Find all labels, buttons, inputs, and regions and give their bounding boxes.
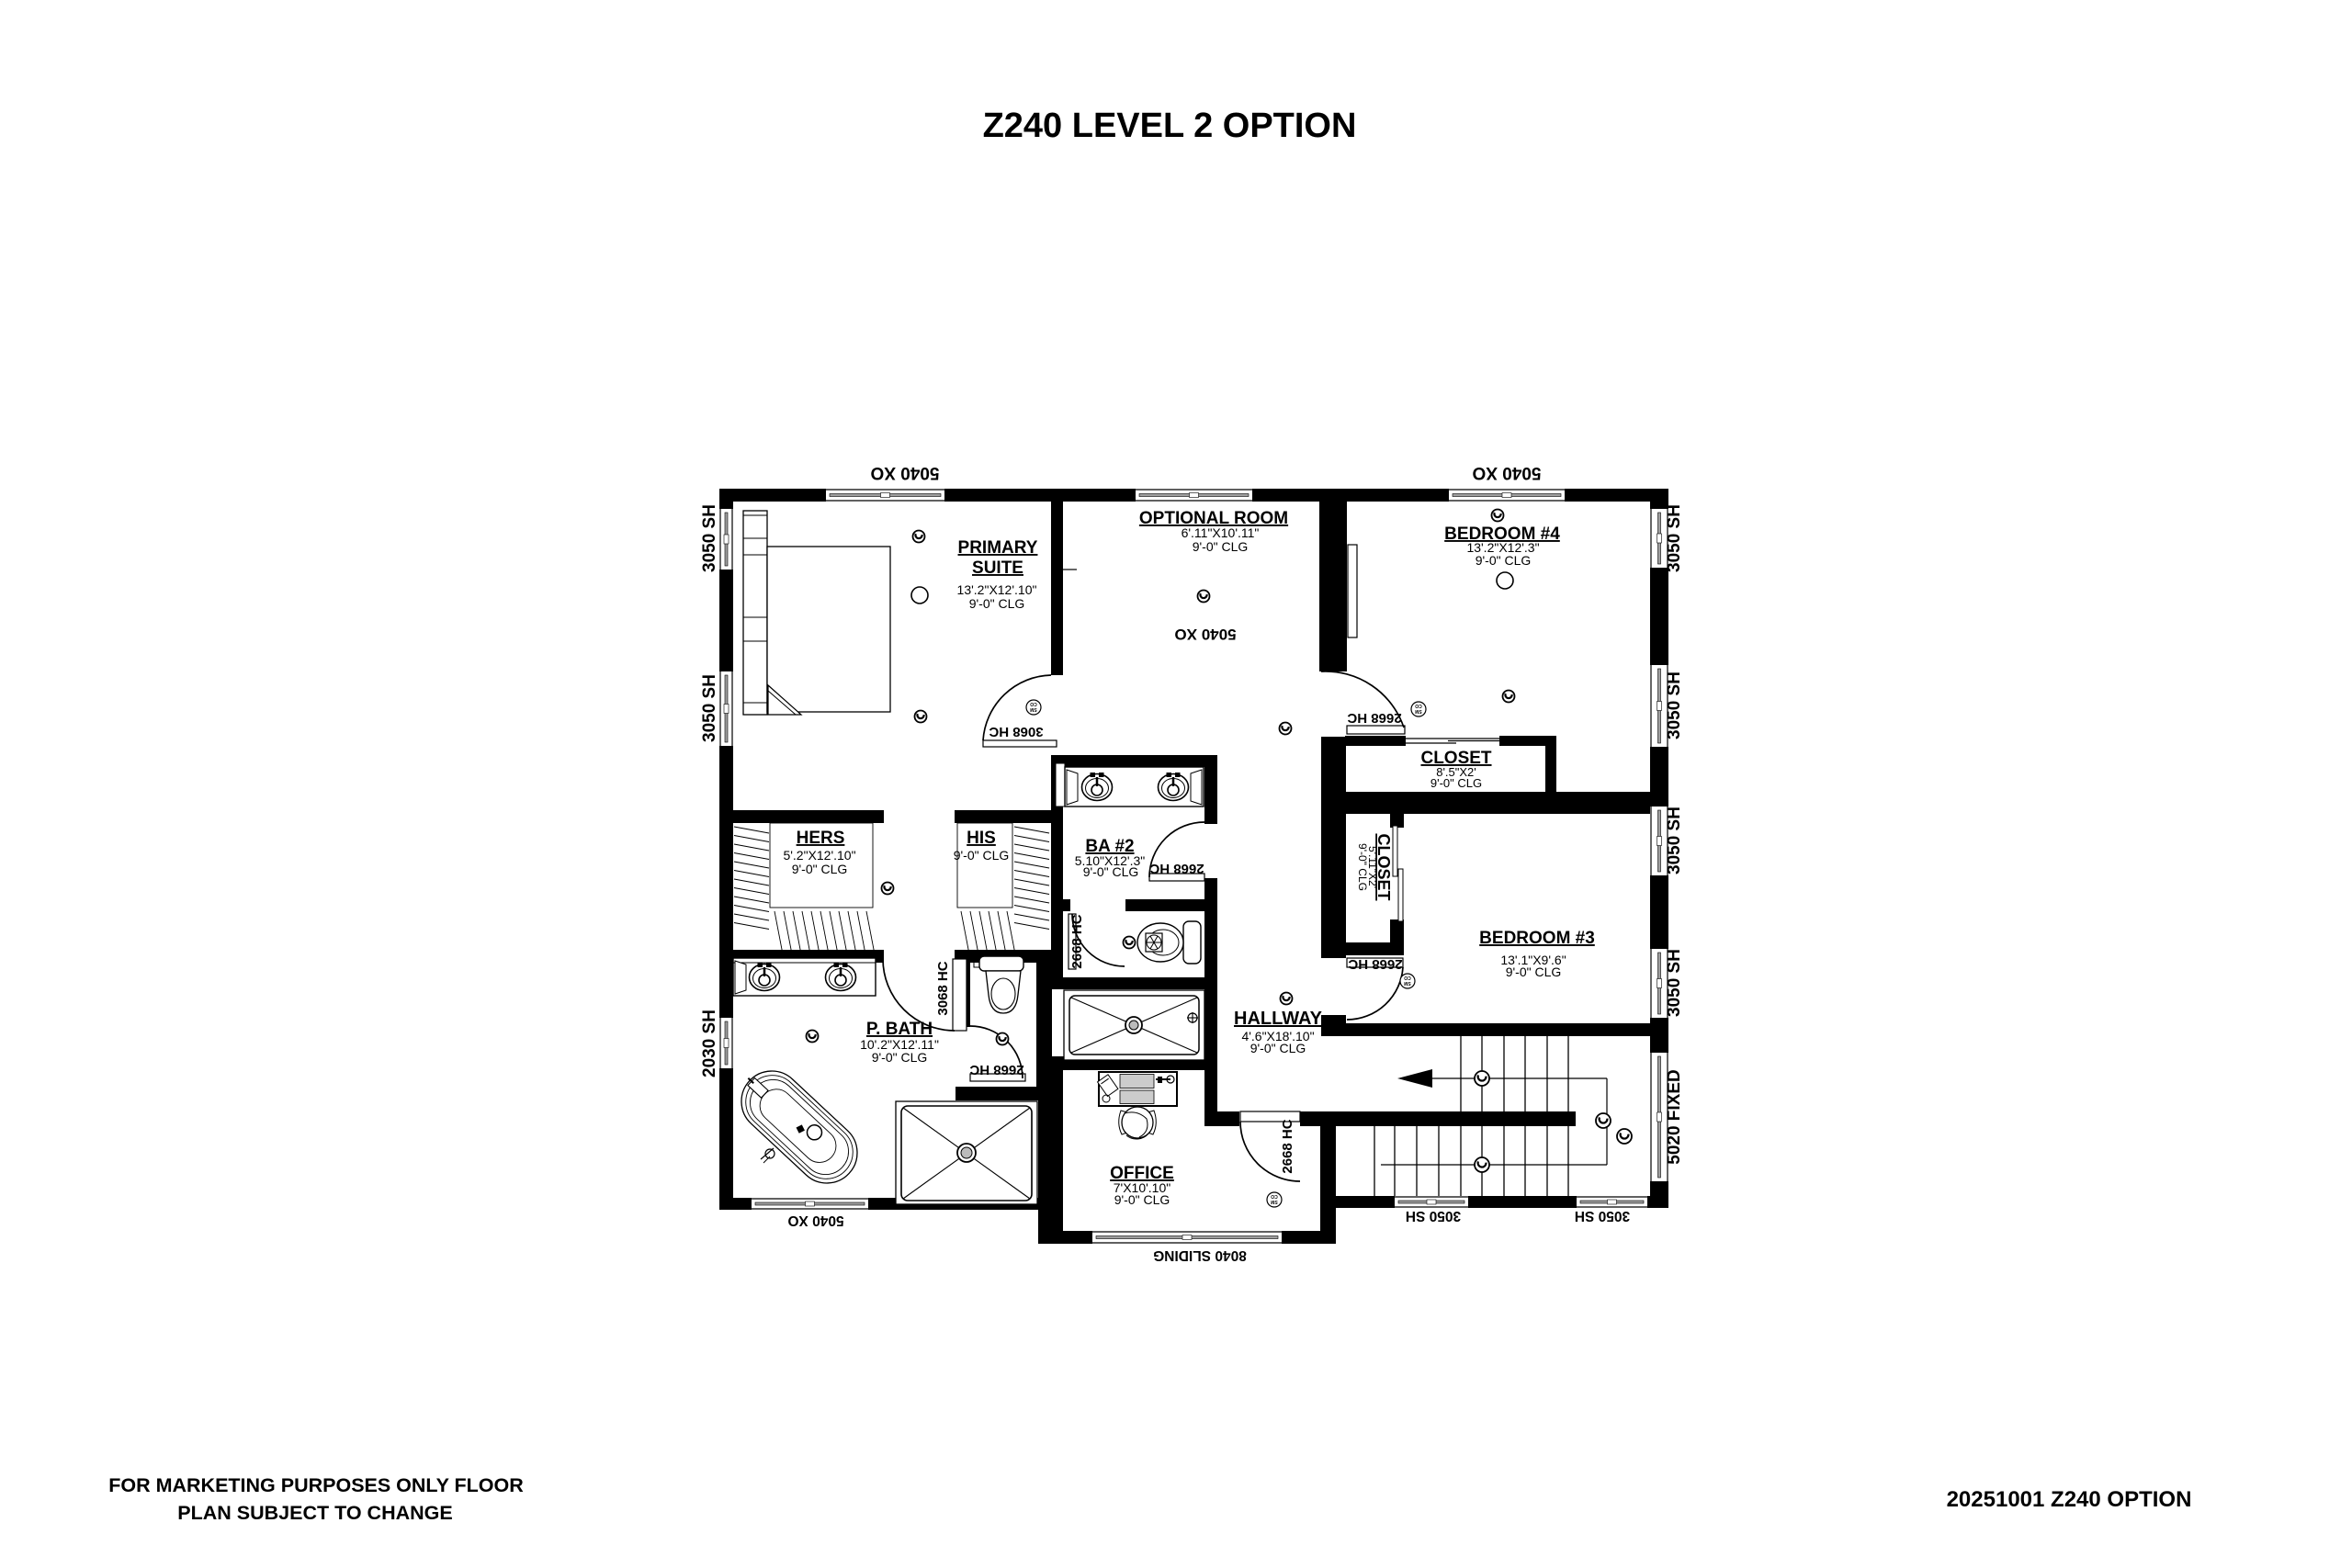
svg-text:5020 FIXED: 5020 FIXED [1665,1069,1684,1165]
svg-text:5'.2"X12'.10": 5'.2"X12'.10" [783,848,855,863]
svg-text:13'.2"X12'.10": 13'.2"X12'.10" [957,582,1037,597]
svg-text:2668 HC: 2668 HC [1347,710,1401,726]
svg-text:3050 SH: 3050 SH [1406,1208,1461,1224]
svg-text:9'-0" CLG: 9'-0" CLG [1476,553,1532,568]
svg-text:BEDROOM #3: BEDROOM #3 [1479,929,1595,948]
svg-text:HALLWAY: HALLWAY [1234,1009,1323,1029]
svg-text:3050 SH: 3050 SH [1575,1208,1630,1224]
svg-text:CO: CO [1404,975,1411,980]
svg-text:PRIMARY: PRIMARY [958,538,1038,558]
svg-text:9'-0" CLG: 9'-0" CLG [954,848,1010,863]
svg-text:2668 HC: 2668 HC [1149,861,1204,876]
svg-text:FOR MARKETING PURPOSES ONLY FL: FOR MARKETING PURPOSES ONLY FLOOR [108,1474,524,1496]
svg-text:Z240 LEVEL 2 OPTION: Z240 LEVEL 2 OPTION [983,107,1357,145]
svg-text:3050 SH: 3050 SH [700,504,719,572]
svg-text:P. BATH: P. BATH [866,1020,933,1039]
svg-text:2030 SH: 2030 SH [700,1010,719,1077]
svg-text:3068 HC: 3068 HC [989,724,1043,739]
svg-text:9'-0" CLG: 9'-0" CLG [1356,843,1369,891]
svg-text:2668 HC: 2668 HC [969,1062,1023,1077]
svg-text:2668 HC: 2668 HC [1280,1119,1295,1173]
svg-text:20251001 Z240 OPTION: 20251001 Z240 OPTION [1947,1487,2192,1512]
svg-text:3050 SH: 3050 SH [1665,949,1684,1017]
svg-text:CO: CO [1415,703,1422,708]
svg-text:PLAN SUBJECT TO CHANGE: PLAN SUBJECT TO CHANGE [177,1502,452,1524]
svg-text:3050 SH: 3050 SH [1665,504,1684,572]
svg-text:HERS: HERS [797,829,845,848]
svg-text:9'-0" CLG: 9'-0" CLG [1193,539,1249,554]
svg-text:2668 HC: 2668 HC [1348,956,1402,972]
svg-text:9'-0" CLG: 9'-0" CLG [872,1050,928,1065]
svg-text:3050 SH: 3050 SH [1665,807,1684,874]
svg-text:5040 XO: 5040 XO [1174,626,1236,643]
svg-text:9'-0" CLG: 9'-0" CLG [1430,776,1482,790]
svg-text:SUITE: SUITE [972,558,1023,578]
svg-text:3068 HC: 3068 HC [935,961,951,1015]
svg-text:9'-0" CLG: 9'-0" CLG [1083,864,1139,879]
svg-text:9'-0" CLG: 9'-0" CLG [1250,1041,1306,1055]
svg-text:HIS: HIS [967,829,996,848]
svg-text:3050 SH: 3050 SH [700,674,719,742]
svg-text:9'-0" CLG: 9'-0" CLG [792,862,848,876]
svg-text:9'-0" CLG: 9'-0" CLG [1506,964,1562,979]
svg-text:2668 HC: 2668 HC [1069,914,1085,968]
svg-text:8040 SLIDING: 8040 SLIDING [1153,1247,1247,1263]
svg-text:9'-0" CLG: 9'-0" CLG [969,596,1025,611]
svg-text:CO: CO [1271,1193,1278,1199]
svg-text:5040 XO: 5040 XO [871,463,940,482]
svg-text:CO: CO [1030,701,1037,706]
svg-text:5040 XO: 5040 XO [787,1213,843,1228]
svg-text:5040 XO: 5040 XO [1473,463,1542,482]
svg-text:6'.11"X10'.11": 6'.11"X10'.11" [1182,525,1260,540]
svg-text:9'-0" CLG: 9'-0" CLG [1114,1192,1170,1207]
svg-text:3050 SH: 3050 SH [1665,671,1684,739]
